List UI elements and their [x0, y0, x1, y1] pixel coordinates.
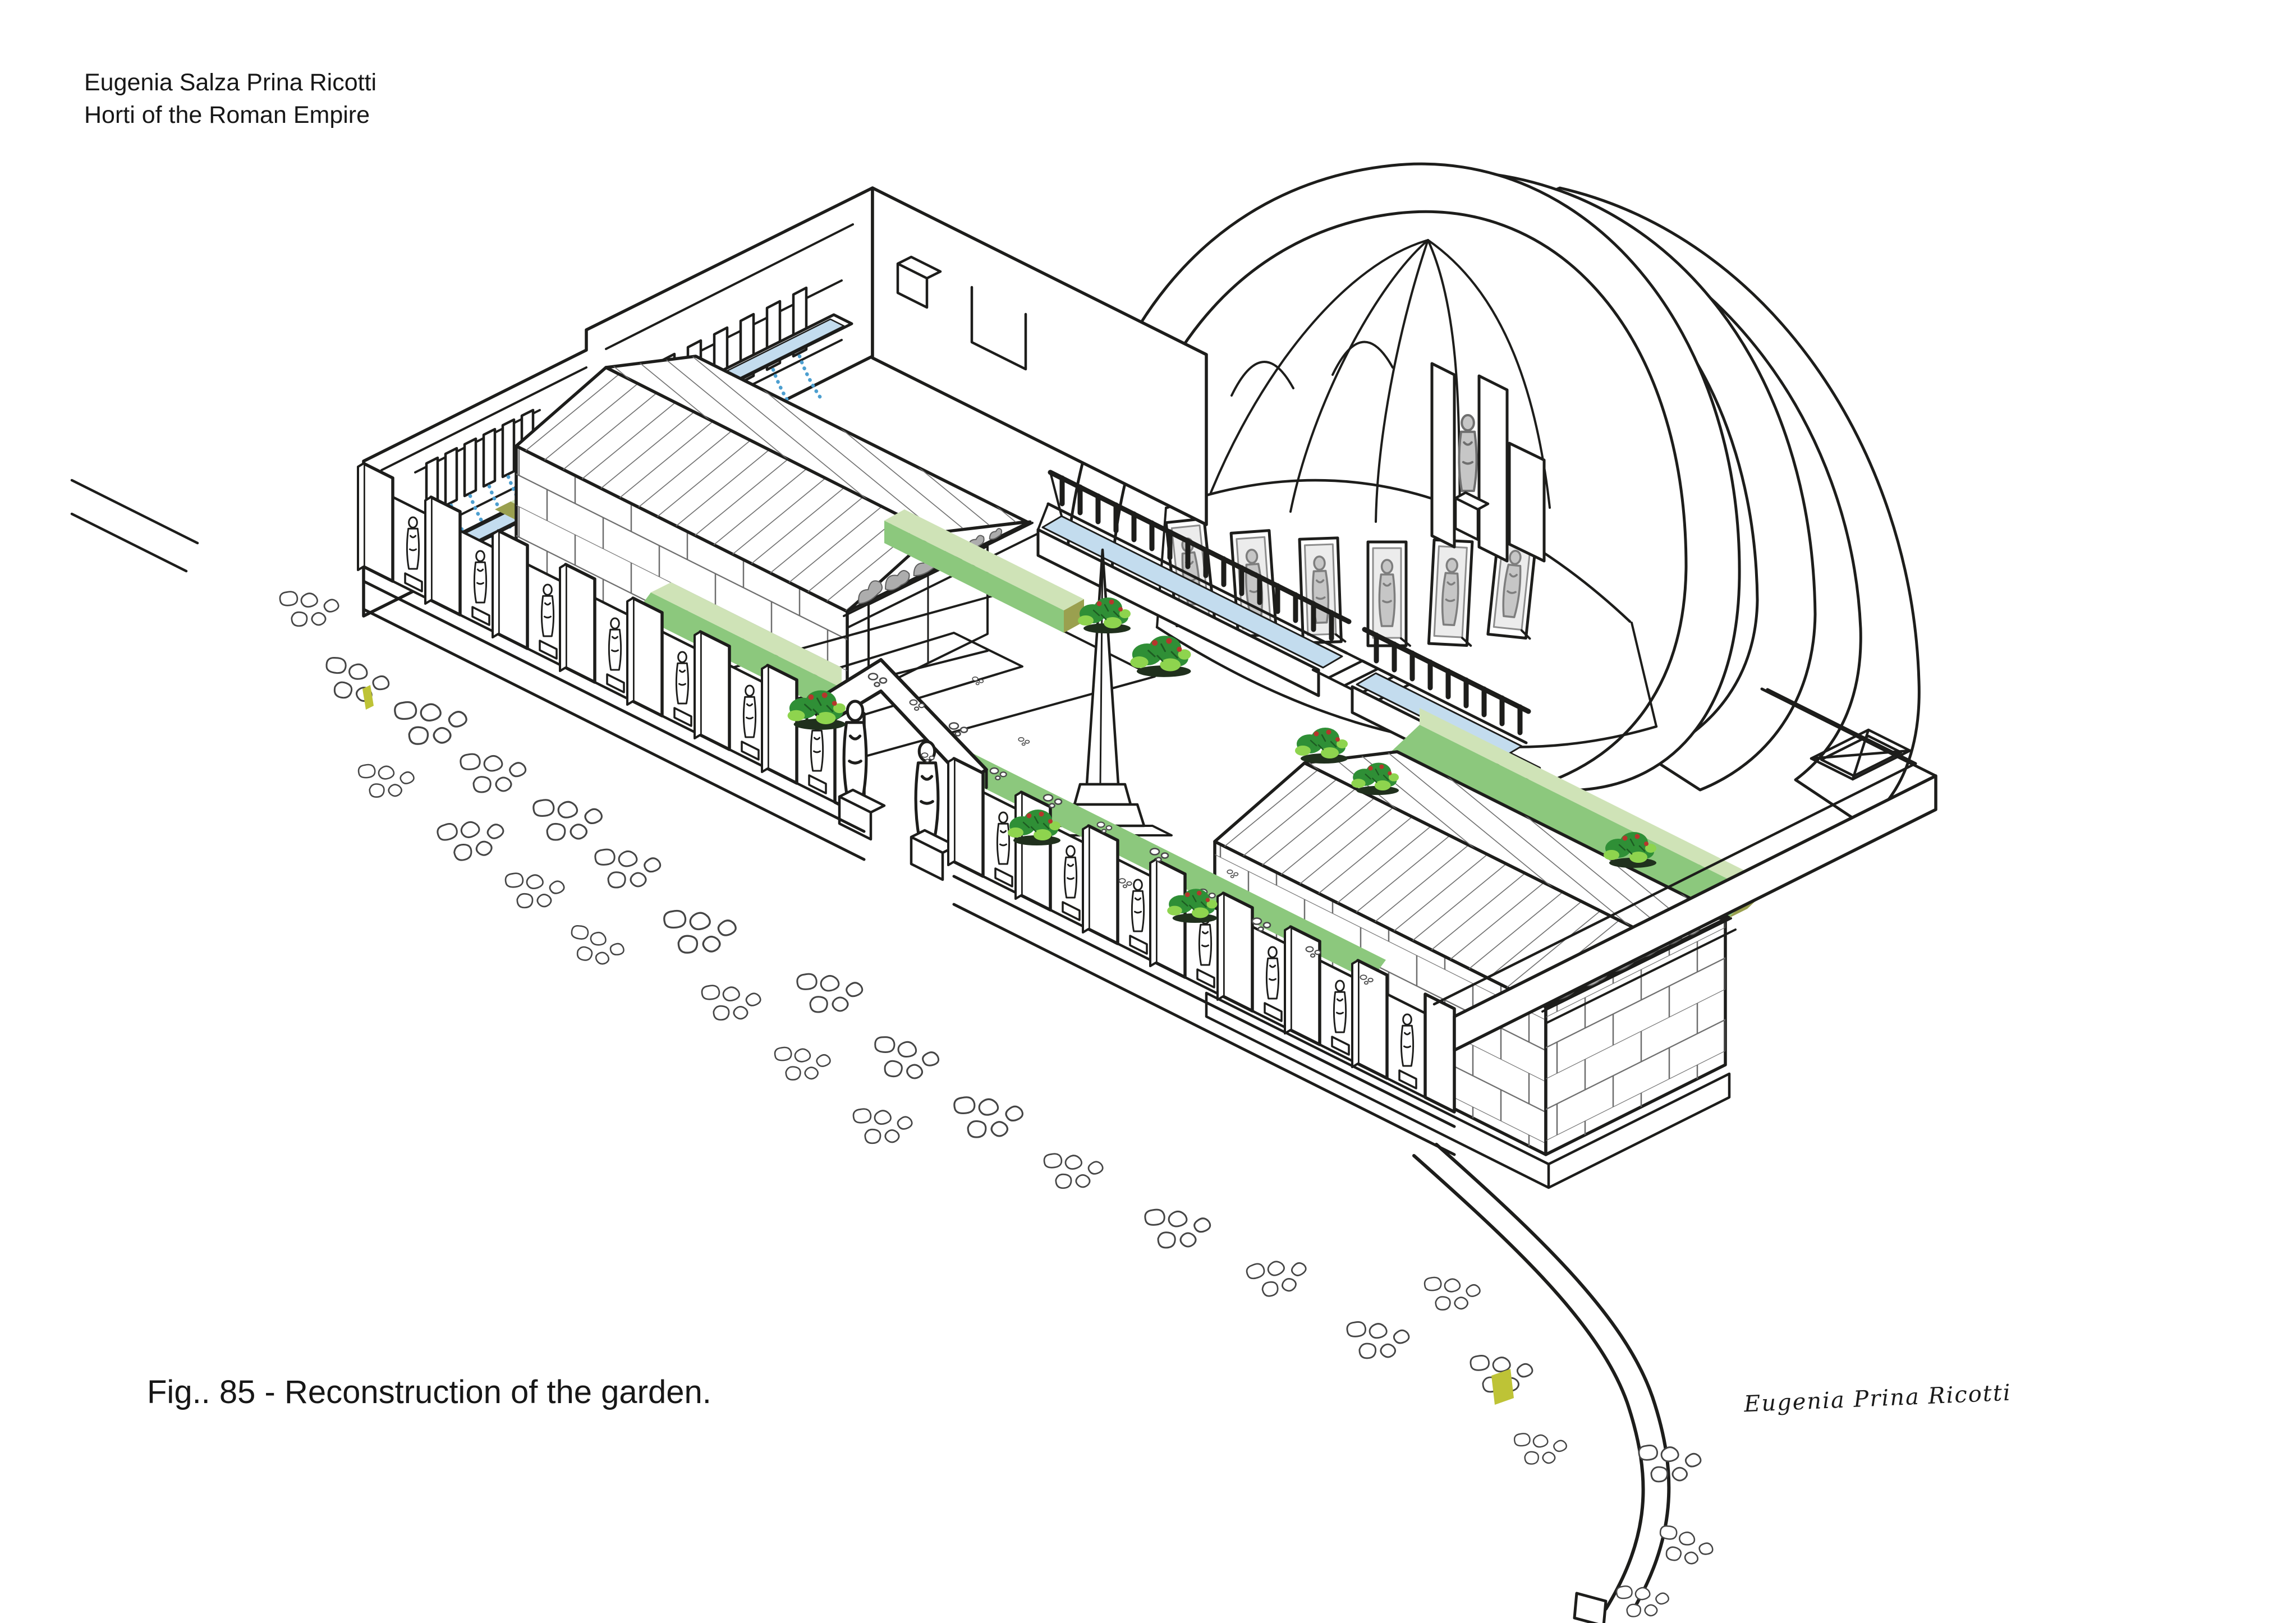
book-header: Eugenia Salza Prina Ricotti Horti of the…	[84, 66, 376, 131]
marker-path-curve	[1491, 1369, 1514, 1405]
marker-path-start	[362, 685, 374, 710]
curved-garden-wall	[1414, 1144, 1669, 1623]
figure-page: Eugenia Salza Prina Ricotti Horti of the…	[0, 0, 2296, 1623]
caryatid-statue	[844, 701, 866, 798]
pedestal-statue	[1459, 415, 1476, 491]
author-name: Eugenia Salza Prina Ricotti	[84, 66, 376, 99]
book-title: Horti of the Roman Empire	[84, 99, 376, 131]
figure-caption: Fig.. 85 - Reconstruction of the garden.	[147, 1373, 711, 1411]
